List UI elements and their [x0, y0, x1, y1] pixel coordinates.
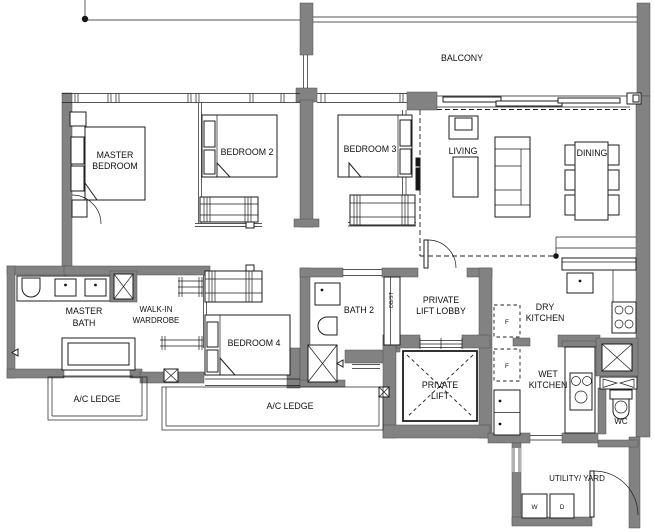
balcony-sliding-doors — [437, 96, 630, 110]
room-master-bedroom: MASTER BEDROOM — [70, 112, 145, 224]
cabinet-symbol — [494, 390, 520, 435]
label-dbst: DB/ST — [389, 291, 395, 308]
label-walk-in-wardrobe: WALK-IN — [139, 305, 172, 314]
label-private-lift: PRIVATE — [422, 380, 458, 390]
bed-symbol — [202, 115, 277, 177]
dryer-symbol: D — [550, 494, 574, 518]
label-ac-ledge: A/C LEDGE — [74, 394, 121, 404]
fridge-symbol: F — [494, 305, 520, 337]
toilet-symbol — [22, 278, 40, 297]
svg-text:BATH: BATH — [73, 318, 96, 328]
label-dryer: D — [560, 504, 565, 511]
sink-symbol — [85, 279, 106, 296]
room-balcony: BALCONY — [441, 53, 483, 63]
walls-layer — [7, 3, 650, 528]
room-living: LIVING — [449, 116, 530, 217]
svg-text:LIFT: LIFT — [431, 391, 450, 401]
room-walk-in-wardrobe: WALK-IN WARDROBE — [133, 277, 203, 350]
balcony-column-box — [627, 93, 641, 104]
door-arc — [428, 240, 456, 268]
label-fridge: F — [505, 319, 509, 326]
svg-text:KITCHEN: KITCHEN — [529, 380, 568, 390]
lift-doors — [420, 338, 462, 349]
label-wc: WC — [614, 417, 628, 426]
washer-symbol: W — [522, 494, 547, 518]
svg-text:LIFT LOBBY: LIFT LOBBY — [416, 306, 466, 316]
wardrobe-symbol — [205, 265, 262, 302]
room-dining: DINING — [565, 142, 619, 220]
floor-plan-page: MASTER BEDROOM BEDROOM 2 — [0, 0, 654, 532]
coffee-table-symbol — [453, 157, 478, 197]
master-bath-window — [63, 370, 133, 376]
bedroom-window-band — [62, 94, 300, 103]
sofa-symbol — [495, 137, 530, 217]
room-dry-kitchen: F DRY KITCHEN — [494, 258, 636, 337]
wall-block — [407, 92, 437, 110]
hob-symbol — [570, 373, 592, 410]
label-fridge: F — [505, 363, 509, 370]
door-marker — [337, 360, 343, 367]
sink-symbol — [567, 273, 593, 293]
sliding-door-panel — [416, 158, 420, 166]
boundary-dot — [82, 16, 88, 22]
door-leaf — [424, 240, 428, 268]
room-utility-yard: W D UTILITY/ YARD — [522, 471, 638, 518]
floor-plan-canvas: MASTER BEDROOM BEDROOM 2 — [0, 0, 654, 532]
label-bedroom2: BEDROOM 2 — [221, 147, 274, 157]
wardrobe-rails — [178, 277, 203, 297]
label-ac-ledge: A/C LEDGE — [267, 401, 314, 411]
private-lift: PRIVATE LIFT — [403, 338, 477, 421]
wardrobe-rails — [160, 336, 203, 350]
shower-symbol — [110, 271, 137, 302]
bath2-window — [352, 365, 380, 369]
room-bedroom3: BEDROOM 3 — [338, 115, 415, 225]
sink-symbol — [315, 283, 340, 305]
label-dining: DINING — [577, 148, 608, 158]
toilet-symbol — [318, 317, 337, 335]
label-living: LIVING — [449, 146, 478, 156]
label-dry-kitchen: DRY — [536, 302, 555, 312]
room-bedroom2: BEDROOM 2 — [200, 115, 277, 228]
label-master-bath: MASTER — [66, 306, 103, 316]
ac-ledge-left: A/C LEDGE — [48, 377, 147, 420]
wardrobe-symbol — [350, 195, 415, 225]
shower-symbol — [308, 345, 337, 382]
vent-bowtie-symbol — [600, 377, 637, 389]
small-x-marker — [379, 387, 389, 397]
label-bedroom4: BEDROOM 4 — [228, 338, 281, 348]
svg-text:BEDROOM: BEDROOM — [92, 161, 137, 171]
label-wet-kitchen: WET — [538, 369, 558, 379]
fridge-symbol: F — [494, 349, 520, 381]
room-bedroom4: BEDROOM 4 — [205, 265, 290, 375]
room-master-bath: MASTER BATH — [12, 271, 137, 370]
bedroom4-window — [205, 379, 300, 386]
svg-text:WARDROBE: WARDROBE — [133, 316, 180, 325]
room-wet-kitchen: F WET KITCHEN — [494, 347, 595, 435]
toilet-symbol — [610, 390, 632, 419]
utility-window — [513, 448, 521, 472]
label-bedroom3: BEDROOM 3 — [344, 144, 397, 154]
small-x-marker — [164, 369, 178, 382]
bedroom3-window-band — [317, 94, 407, 103]
property-boundary — [82, 0, 637, 22]
label-bath2: BATH 2 — [344, 305, 374, 315]
svg-text:KITCHEN: KITCHEN — [526, 313, 565, 323]
hob-symbol — [612, 302, 636, 333]
label-lift-lobby: PRIVATE — [423, 295, 459, 305]
label-washer: W — [531, 504, 538, 511]
ac-ledge-center: A/C LEDGE — [162, 387, 383, 430]
label-balcony: BALCONY — [441, 53, 483, 63]
sliding-door-panel — [416, 168, 420, 190]
bathtub-symbol — [62, 338, 135, 370]
label-master-bedroom: MASTER — [97, 150, 134, 160]
room-private-lift-lobby: PRIVATE LIFT LOBBY — [416, 240, 466, 316]
room-wc: WC — [610, 390, 632, 426]
label-utility-yard: UTILITY/ YARD — [549, 474, 605, 483]
dbst-closet: DB/ST — [384, 277, 400, 345]
sink-symbol — [55, 279, 76, 296]
wet-kitchen-window — [530, 436, 562, 441]
armchair-symbol — [449, 116, 478, 139]
shaft-x-symbol — [602, 344, 632, 371]
